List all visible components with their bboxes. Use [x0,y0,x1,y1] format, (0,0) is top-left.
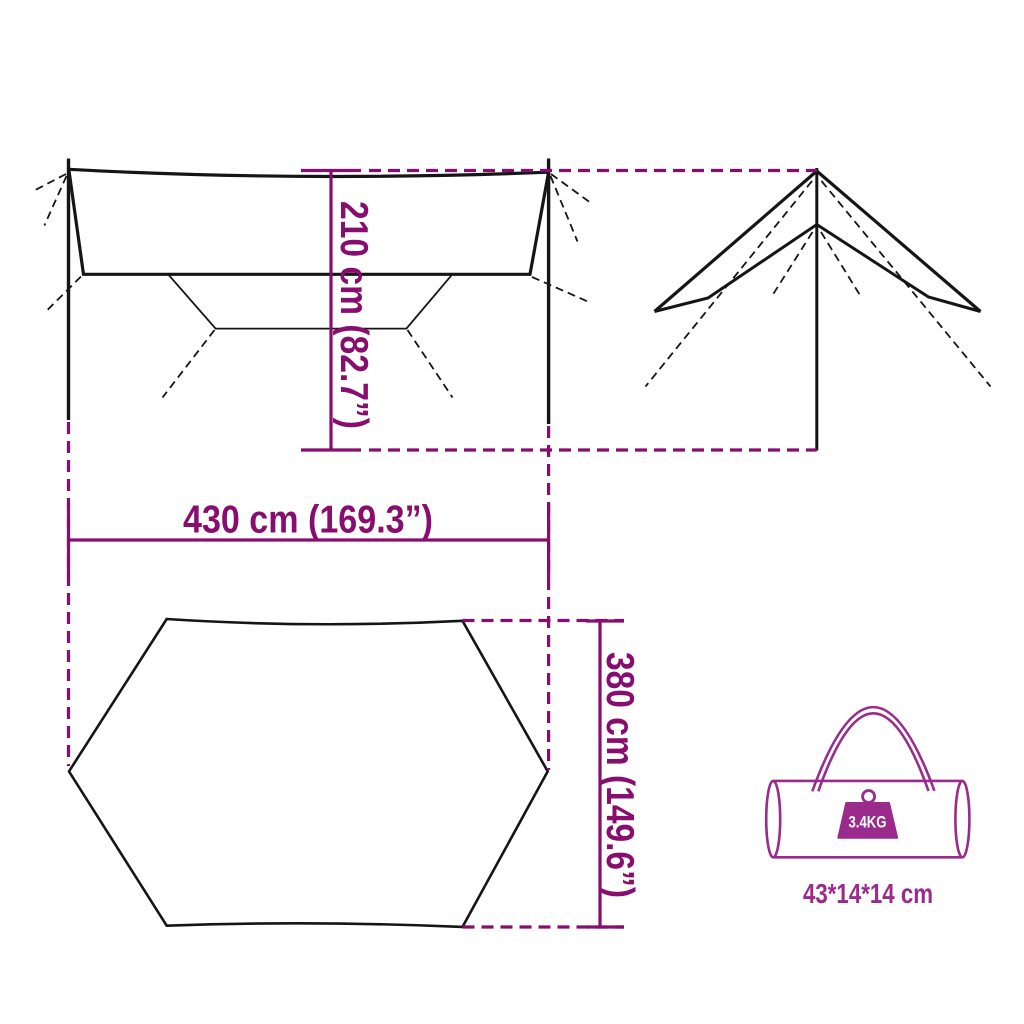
svg-text:3.4KG: 3.4KG [849,813,887,831]
svg-text:43*14*14 cm: 43*14*14 cm [803,878,933,909]
svg-text:210 cm (82.7”): 210 cm (82.7”) [332,201,375,429]
svg-text:380 cm (149.6”): 380 cm (149.6”) [598,652,641,898]
svg-text:430 cm (169.3”): 430 cm (169.3”) [183,499,433,542]
